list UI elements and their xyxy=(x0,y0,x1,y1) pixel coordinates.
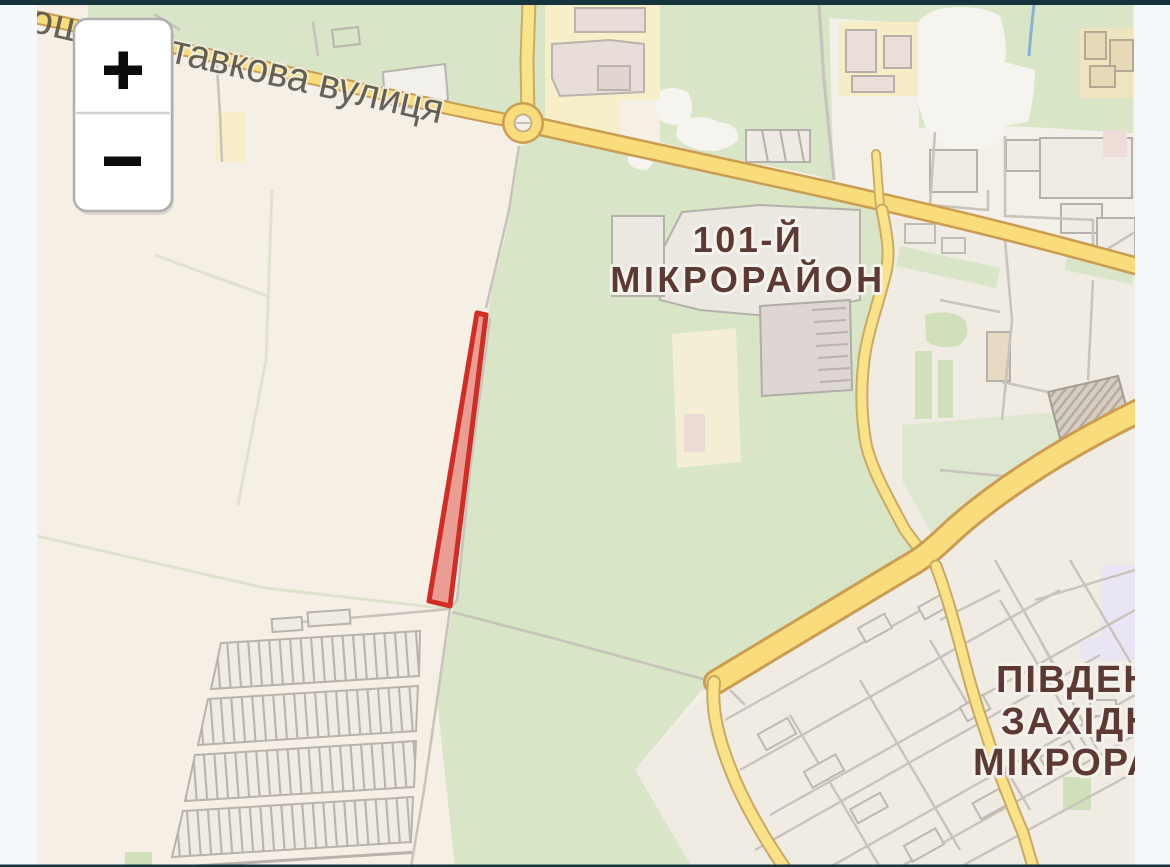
svg-text:ЗАХІДН: ЗАХІДН xyxy=(1001,701,1155,743)
svg-text:101-Й: 101-Й xyxy=(693,218,803,260)
svg-text:МІКРОРА: МІКРОРА xyxy=(973,742,1156,784)
svg-text:МІКРОРАЙОН: МІКРОРАЙОН xyxy=(610,258,885,300)
svg-text:ПІВДЕН: ПІВДЕН xyxy=(996,659,1153,701)
